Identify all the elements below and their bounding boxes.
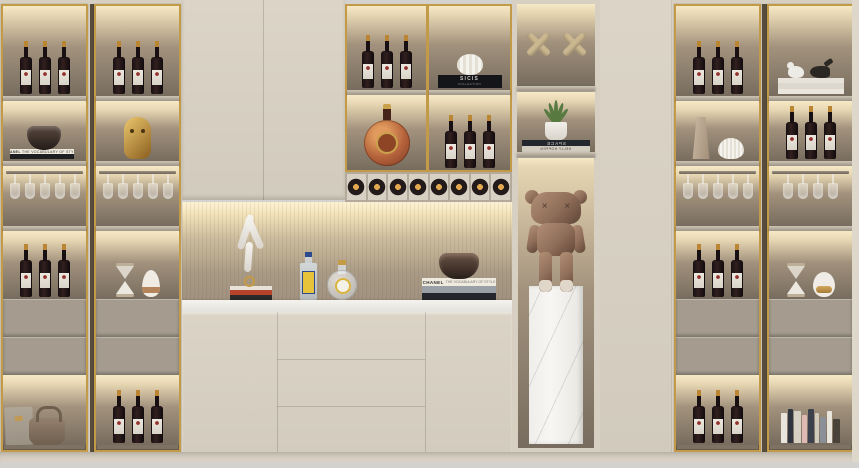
center-column-right: SICISCOLLECTION xyxy=(429,6,510,170)
wine-bottle xyxy=(362,51,374,88)
gold-ring xyxy=(244,276,255,287)
wine-glass xyxy=(697,174,709,201)
center-shelf-unit: SICISCOLLECTION xyxy=(345,4,512,172)
wine-cubby xyxy=(430,174,449,200)
compartment-hourglass xyxy=(769,231,852,299)
wine-bottle-group xyxy=(113,40,163,94)
wine-bottle-group xyxy=(20,40,70,94)
compartment-wine-bottom xyxy=(676,375,759,445)
wine-bottle xyxy=(113,406,125,443)
compartment-cognac xyxy=(347,95,426,170)
acrobat-sculpture xyxy=(220,212,284,300)
wine-bottle-group xyxy=(362,34,412,88)
drawer-stack[interactable] xyxy=(769,299,852,375)
wine-cubby xyxy=(450,174,469,200)
shelf xyxy=(517,86,595,91)
wine-bottle xyxy=(824,122,836,159)
potted-plant xyxy=(538,96,574,140)
wine-cubby xyxy=(388,174,407,200)
wine-bottle xyxy=(731,57,743,94)
wine-bottle xyxy=(712,57,724,94)
wine-bottle xyxy=(39,260,51,297)
right-display-column-1 xyxy=(674,4,761,452)
wine-bottle xyxy=(39,57,51,94)
drawer[interactable] xyxy=(3,337,86,375)
drawer[interactable] xyxy=(3,299,86,337)
book xyxy=(833,419,840,443)
book xyxy=(820,417,826,443)
handbag xyxy=(29,418,65,445)
sideboard-drawer[interactable] xyxy=(277,312,425,359)
book xyxy=(815,413,819,443)
black-bird-figurine xyxy=(810,66,830,78)
wine-bottle xyxy=(445,131,457,168)
wine-bottle xyxy=(400,51,412,88)
door-gap xyxy=(263,0,264,200)
wine-bottle xyxy=(731,406,743,443)
drawer-stack[interactable] xyxy=(3,299,86,375)
wine-bottle xyxy=(132,406,144,443)
compartment-vases xyxy=(676,101,759,161)
wine-glass xyxy=(742,174,754,201)
book-spine xyxy=(778,89,844,94)
drawer[interactable] xyxy=(769,299,852,337)
right-display-section xyxy=(672,0,852,452)
cognac-bottle xyxy=(364,104,410,166)
cabinet-base xyxy=(0,452,852,462)
books-and-bowl: CHANEL THE VOCABULARY OF STYLE xyxy=(10,107,80,159)
hourglass xyxy=(786,263,806,297)
wine-glass xyxy=(812,174,824,201)
wine-bottle xyxy=(58,57,70,94)
wine-glass xyxy=(117,174,129,201)
wine-bottle-group xyxy=(693,40,743,94)
book-row xyxy=(781,409,840,443)
compartment-decor: CHANEL THE VOCABULARY OF STYLE xyxy=(3,101,86,161)
book xyxy=(788,409,793,443)
wine-glass xyxy=(39,174,51,201)
compartment-stemware xyxy=(676,166,759,226)
compartment-wine xyxy=(347,6,426,90)
stemware-rack xyxy=(679,171,756,201)
figure-head xyxy=(531,192,581,224)
book xyxy=(808,409,814,443)
book xyxy=(794,411,801,443)
side-panel xyxy=(852,0,859,462)
wine-bottle xyxy=(712,260,724,297)
sideboard-drawer[interactable] xyxy=(277,406,425,452)
compartment-hourglass xyxy=(96,231,179,299)
drawer[interactable] xyxy=(769,337,852,375)
gold-mask-sculpture xyxy=(124,117,151,159)
book xyxy=(802,415,807,443)
glass-bowl xyxy=(27,126,61,150)
wine-glass xyxy=(9,174,21,201)
upper-cabinet-doors[interactable] xyxy=(182,0,345,200)
stemware-rack xyxy=(99,171,176,201)
wine-bottle-group xyxy=(113,389,163,443)
compartment-books xyxy=(769,375,852,445)
gold-band-vase xyxy=(813,272,835,297)
hourglass xyxy=(115,263,135,297)
bird-figurines-on-books xyxy=(778,58,844,94)
compartment-stemware xyxy=(769,166,852,226)
wine-bottle xyxy=(693,260,705,297)
compartment-stemware xyxy=(3,166,86,226)
wine-bottle xyxy=(151,57,163,94)
compartment-birds xyxy=(769,6,852,96)
stemware-rack xyxy=(6,171,83,201)
compartment-plant: SPACE KELLY HOPPEN xyxy=(517,92,595,152)
wine-glass xyxy=(54,174,66,201)
book xyxy=(827,411,832,443)
bronze-figure xyxy=(524,192,588,304)
wine-bottle xyxy=(712,406,724,443)
book-stack: CHANEL THE VOCABULARY OF STYLE xyxy=(10,149,74,159)
x-ornament xyxy=(560,30,589,59)
wine-bottle xyxy=(731,260,743,297)
wine-bottle xyxy=(58,260,70,297)
plant-on-books: SPACE KELLY HOPPEN xyxy=(520,96,592,152)
plant-pot xyxy=(545,122,567,140)
drawer-stack[interactable] xyxy=(676,299,759,375)
wine-glass xyxy=(782,174,794,201)
wine-bottle-group xyxy=(20,243,70,297)
folded-vase xyxy=(691,117,711,159)
left-display-column-2 xyxy=(94,4,181,452)
wine-bottle xyxy=(381,51,393,88)
wine-bottle xyxy=(464,131,476,168)
wine-cubby xyxy=(409,174,428,200)
wine-glass xyxy=(162,174,174,201)
sicis-book: SICISCOLLECTION xyxy=(438,75,502,88)
compartment-stemware xyxy=(96,166,179,226)
wine-cubby xyxy=(471,174,490,200)
sideboard-door-left[interactable] xyxy=(182,312,277,452)
wine-bottle xyxy=(20,57,32,94)
stemware-rack xyxy=(772,171,849,201)
book xyxy=(781,413,787,443)
gourd-ornament xyxy=(457,54,483,75)
compartment-wine-top xyxy=(96,6,179,96)
tall-sculpture-niche xyxy=(518,158,594,448)
drawer-stack[interactable] xyxy=(96,299,179,375)
book-stack: CHANELTHE VOCABULARY OF STYLE xyxy=(422,278,496,300)
book-stack: SPACE KELLY HOPPEN xyxy=(522,140,590,152)
wine-bottle xyxy=(20,260,32,297)
compartment-wine-bottom xyxy=(96,375,179,445)
wine-bottle-group xyxy=(445,114,495,168)
wine-bottle-group xyxy=(786,105,836,159)
compartment-wine xyxy=(769,101,852,161)
spirit-bottle-yellow-label xyxy=(300,263,317,300)
white-bird-figurine xyxy=(788,66,804,78)
book-spine xyxy=(422,293,496,300)
sideboard xyxy=(182,312,512,452)
wine-bottle xyxy=(693,57,705,94)
teardrop-vase xyxy=(142,270,160,297)
sideboard-drawer[interactable] xyxy=(277,359,425,406)
wine-bottle-group xyxy=(693,243,743,297)
book-spine xyxy=(422,286,496,293)
compartment-wine xyxy=(429,95,510,170)
shelf xyxy=(517,152,595,157)
wine-bottle-group xyxy=(693,389,743,443)
round-flask-bottle xyxy=(327,260,357,300)
wine-cubby xyxy=(368,174,387,200)
compartment-wine-mid xyxy=(676,231,759,299)
wine-glass xyxy=(147,174,159,201)
drawer[interactable] xyxy=(676,337,759,375)
books-and-smoked-bowl: CHANELTHE VOCABULARY OF STYLE xyxy=(422,252,496,300)
wine-bottle xyxy=(151,406,163,443)
wine-glass xyxy=(797,174,809,201)
sideboard-door-right[interactable] xyxy=(425,312,512,452)
compartment-bag xyxy=(3,375,86,445)
compartment-ornament: SICISCOLLECTION xyxy=(429,6,510,90)
compartment-wine-top xyxy=(676,6,759,96)
left-display-section: CHANEL THE VOCABULARY OF STYLE xyxy=(0,0,182,452)
drawer[interactable] xyxy=(676,299,759,337)
wine-glass xyxy=(727,174,739,201)
wine-cubby xyxy=(491,174,510,200)
wine-bottle xyxy=(132,57,144,94)
right-display-column-2 xyxy=(767,4,854,452)
smoked-glass-bowl xyxy=(439,253,479,279)
book-spine: CHANELTHE VOCABULARY OF STYLE xyxy=(422,278,496,286)
x-ornament xyxy=(524,30,553,59)
compartment-wine-top xyxy=(3,6,86,96)
bar-cabinet-scene: CHANEL THE VOCABULARY OF STYLE xyxy=(0,0,859,468)
wine-glass xyxy=(682,174,694,201)
tall-cabinet-door[interactable] xyxy=(600,0,672,452)
drawer[interactable] xyxy=(96,337,179,375)
ribbed-vase xyxy=(718,138,744,159)
wine-bottle xyxy=(805,122,817,159)
small-book-stack xyxy=(230,286,272,300)
tall-display-column: SPACE KELLY HOPPEN xyxy=(512,0,600,452)
compartment-decor xyxy=(96,101,179,161)
marble-plinth xyxy=(529,286,583,444)
companion-figure-sculpture xyxy=(518,158,594,444)
wine-bottle xyxy=(693,406,705,443)
wine-glass xyxy=(24,174,36,201)
left-display-column-1: CHANEL THE VOCABULARY OF STYLE xyxy=(1,4,88,452)
wine-bottle xyxy=(113,57,125,94)
wine-glass xyxy=(712,174,724,201)
wine-glass xyxy=(827,174,839,201)
wine-glass xyxy=(69,174,81,201)
book-stack xyxy=(778,78,844,94)
wine-cubby xyxy=(347,174,366,200)
backlit-counter-niche: CHANELTHE VOCABULARY OF STYLE xyxy=(182,202,512,312)
drawer[interactable] xyxy=(96,299,179,337)
marble-countertop xyxy=(182,300,512,312)
book-spine xyxy=(10,154,74,159)
horizontal-wine-rack xyxy=(345,172,512,202)
wine-bottle xyxy=(483,131,495,168)
gourd-on-book: SICISCOLLECTION xyxy=(437,50,503,88)
wine-glass xyxy=(102,174,114,201)
wine-bottle xyxy=(786,122,798,159)
compartment-wine-mid xyxy=(3,231,86,299)
wine-glass xyxy=(132,174,144,201)
center-column-left xyxy=(347,6,426,170)
compartment-x-ornaments xyxy=(517,4,595,86)
